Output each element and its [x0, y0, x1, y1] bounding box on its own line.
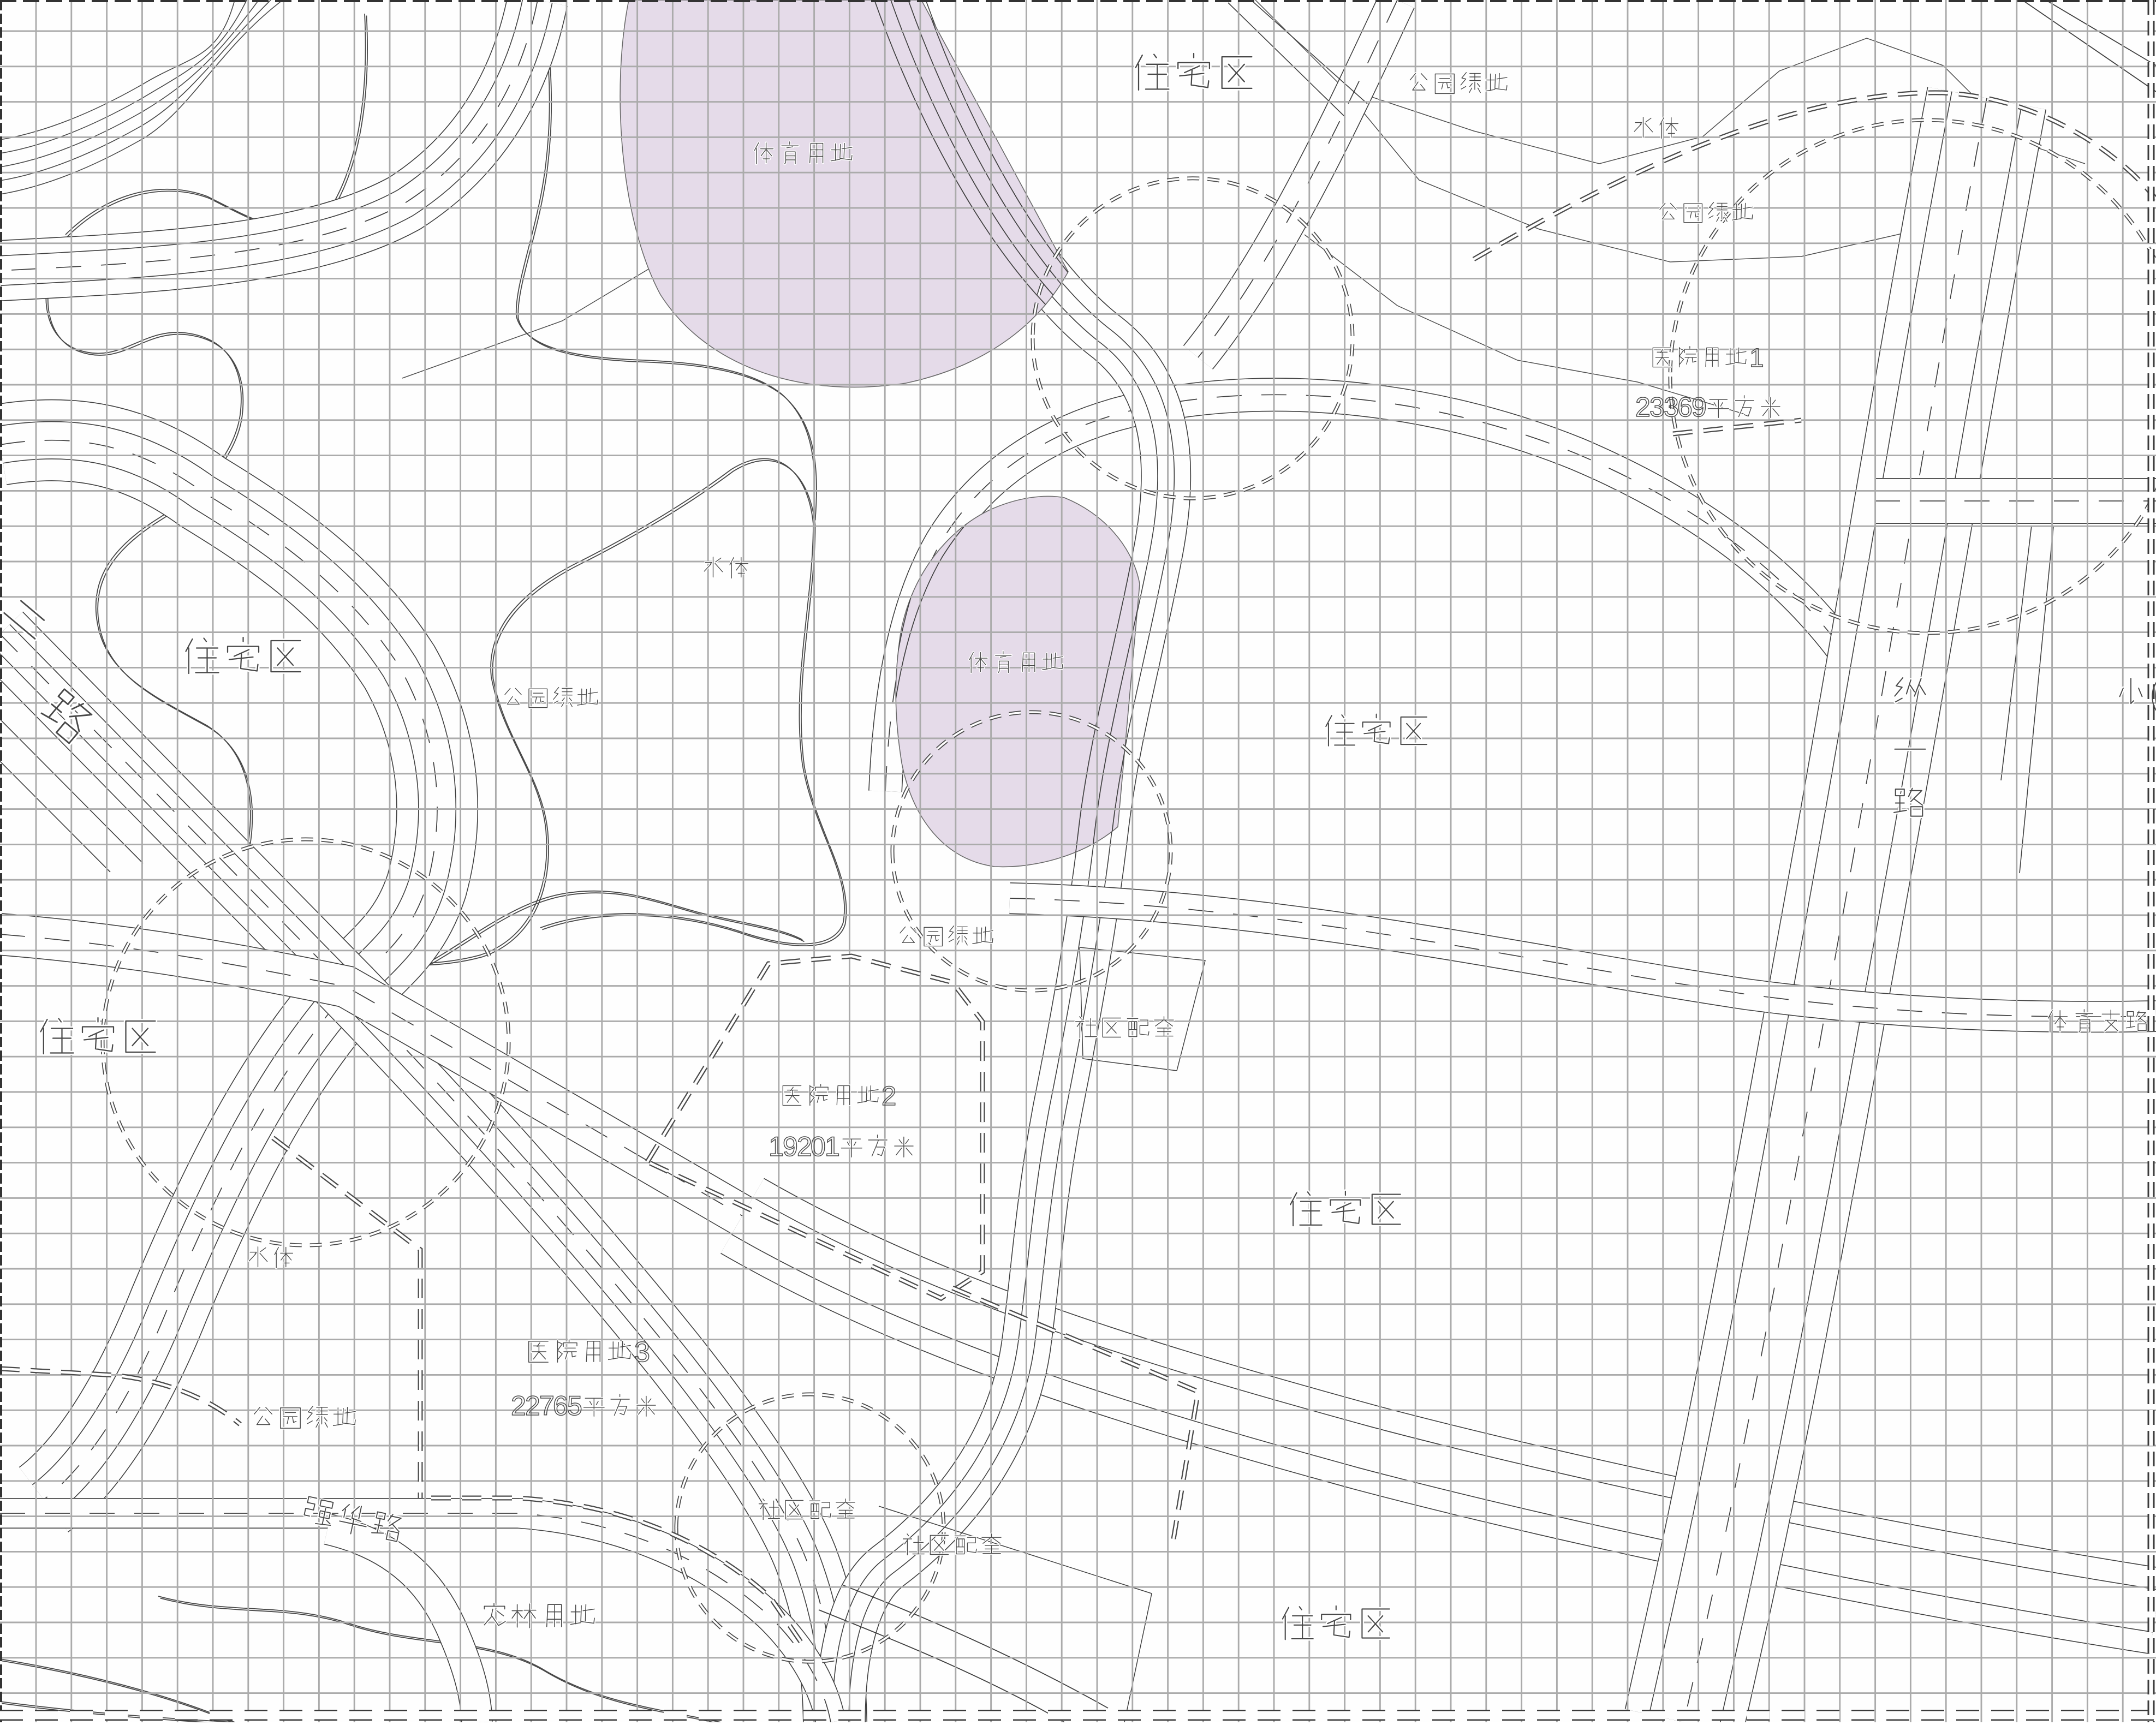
svg-text:(: (: [2150, 672, 2156, 714]
svg-text:3: 3: [1664, 392, 1679, 422]
svg-text:1: 1: [1749, 344, 1764, 373]
svg-text:7: 7: [539, 1390, 555, 1421]
svg-text:9: 9: [1692, 392, 1707, 422]
svg-text:0: 0: [811, 1131, 826, 1162]
svg-text:6: 6: [1677, 392, 1693, 422]
svg-text:2: 2: [511, 1390, 526, 1421]
svg-text:9: 9: [783, 1131, 798, 1162]
svg-text:2: 2: [1635, 392, 1651, 422]
svg-text:5: 5: [567, 1390, 582, 1421]
svg-text:2: 2: [797, 1131, 812, 1162]
svg-text:1: 1: [769, 1131, 784, 1162]
svg-text:1: 1: [825, 1131, 840, 1162]
svg-text:6: 6: [553, 1390, 568, 1421]
svg-text:2: 2: [882, 1082, 896, 1111]
svg-text:3: 3: [1649, 392, 1665, 422]
svg-text:3: 3: [634, 1336, 650, 1368]
svg-text:2: 2: [525, 1390, 540, 1421]
